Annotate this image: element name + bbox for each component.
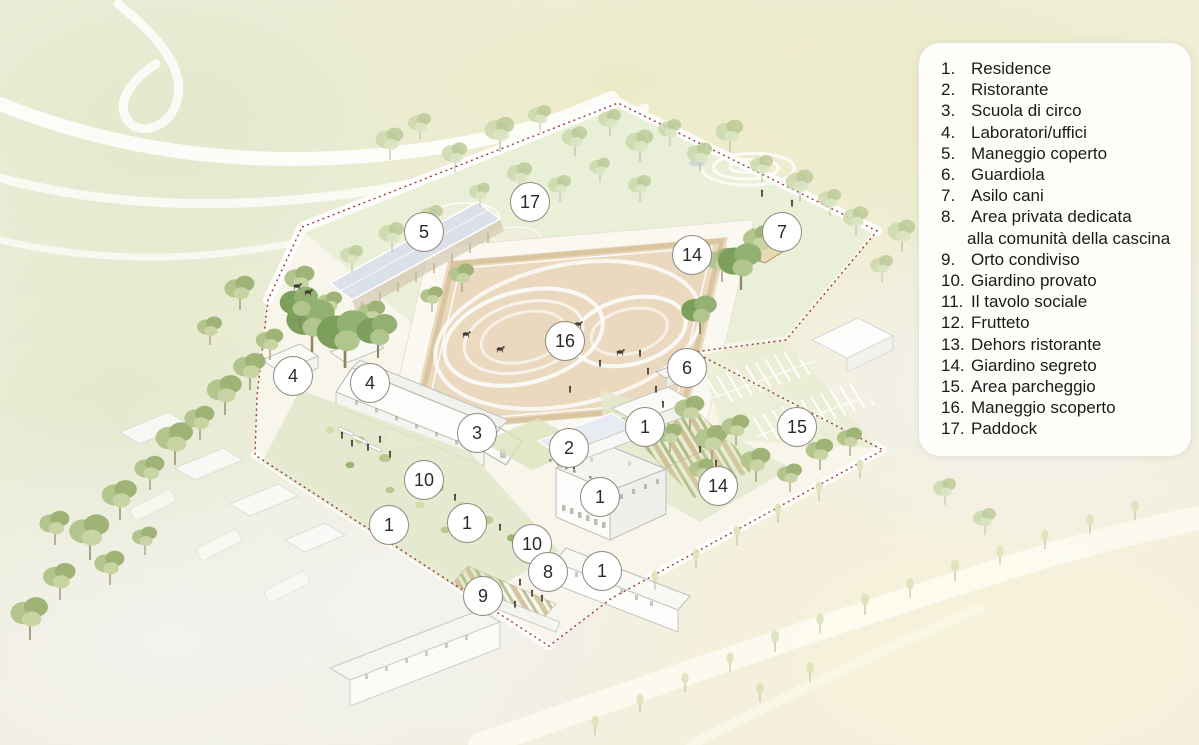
plan-marker-9: 9 (463, 576, 503, 616)
legend-item-16: 16.Maneggio scoperto (941, 397, 1181, 418)
legend-item-7: 7.Asilo cani (941, 185, 1181, 206)
plan-marker-8: 8 (528, 552, 568, 592)
legend-item-8-cont: alla comunità della cascina (941, 228, 1181, 249)
legend-list: 1.Residence2.Ristorante3.Scuola di circo… (941, 58, 1181, 440)
plan-marker-4: 4 (273, 356, 313, 396)
legend-card: 1.Residence2.Ristorante3.Scuola di circo… (918, 42, 1192, 457)
legend-item-1: 1.Residence (941, 58, 1181, 79)
plan-marker-1: 1 (580, 477, 620, 517)
legend-item-13: 13.Dehors ristorante (941, 334, 1181, 355)
plan-marker-15: 15 (777, 407, 817, 447)
plan-marker-1: 1 (369, 505, 409, 545)
plan-marker-16: 16 (545, 321, 585, 361)
legend-item-8: 8.Area privata dedicata (941, 206, 1181, 227)
plan-marker-5: 5 (404, 212, 444, 252)
plan-marker-10: 10 (404, 460, 444, 500)
plan-marker-17: 17 (510, 182, 550, 222)
plan-marker-6: 6 (667, 348, 707, 388)
legend-item-2: 2.Ristorante (941, 79, 1181, 100)
legend-item-15: 15.Area parcheggio (941, 376, 1181, 397)
legend-item-11: 11.Il tavolo sociale (941, 291, 1181, 312)
plan-marker-14: 14 (672, 235, 712, 275)
legend-item-6: 6.Guardiola (941, 164, 1181, 185)
legend-item-10: 10.Giardino provato (941, 270, 1181, 291)
plan-marker-7: 7 (762, 212, 802, 252)
legend-item-17: 17.Paddock (941, 418, 1181, 439)
plan-marker-3: 3 (457, 413, 497, 453)
plan-marker-2: 2 (549, 428, 589, 468)
legend-item-3: 3.Scuola di circo (941, 100, 1181, 121)
plan-marker-4: 4 (350, 363, 390, 403)
legend-item-4: 4.Laboratori/uffici (941, 122, 1181, 143)
legend-item-14: 14.Giardino segreto (941, 355, 1181, 376)
site-plan-page: 1751471664432115101411110819 1.Residence… (0, 0, 1199, 745)
plan-marker-1: 1 (447, 503, 487, 543)
legend-item-5: 5.Maneggio coperto (941, 143, 1181, 164)
legend-item-12: 12.Frutteto (941, 312, 1181, 333)
legend-item-9: 9.Orto condiviso (941, 249, 1181, 270)
plan-marker-1: 1 (582, 551, 622, 591)
plan-marker-14: 14 (698, 466, 738, 506)
plan-marker-1: 1 (625, 407, 665, 447)
